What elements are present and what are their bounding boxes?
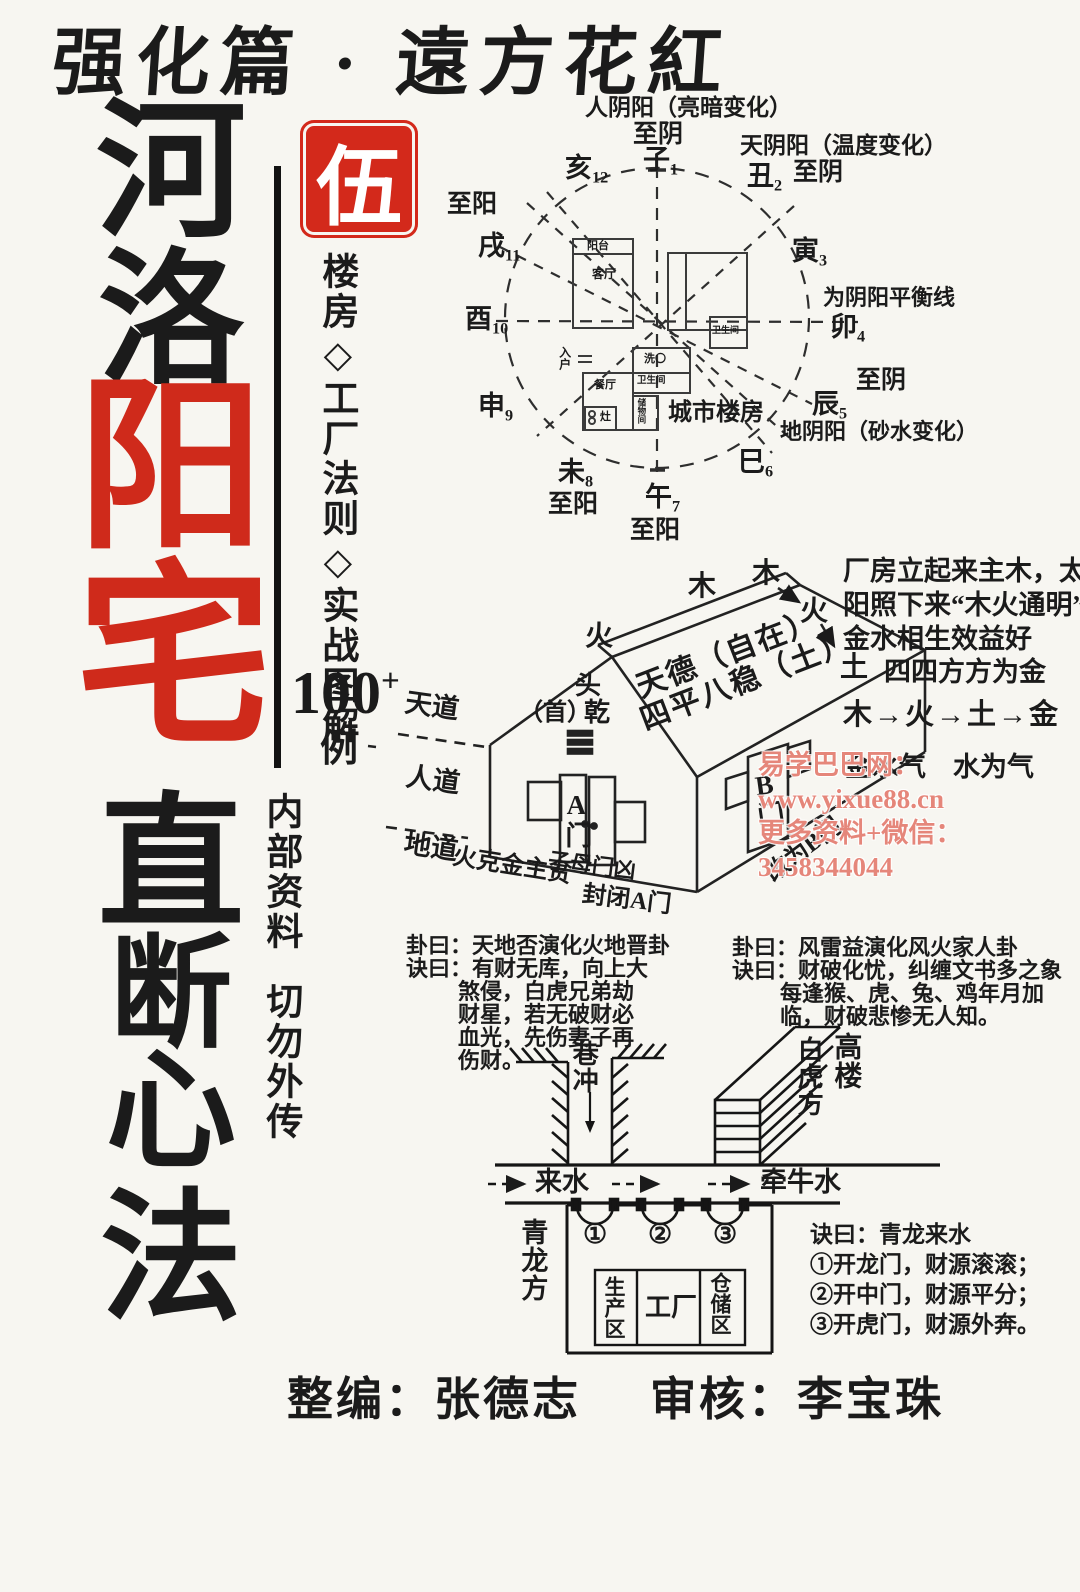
count-number: 100 (291, 660, 381, 726)
verse-line2: ②开中门，财源平分； (810, 1280, 1040, 1310)
branch-chen-num: 5 (839, 405, 847, 423)
branch-shen-num: 9 (505, 407, 513, 425)
branch-xu: 戌11 (478, 232, 520, 265)
element-wood-2: 木 (752, 559, 780, 588)
title-char-fa: 法 (76, 1188, 266, 1330)
label-door-a: A门 (562, 790, 590, 849)
branch-xu-num: 11 (505, 247, 520, 265)
branch-zi: 子1 (643, 146, 678, 179)
confidential-line1: 内部资料 (260, 792, 299, 952)
branch-yin-num: 3 (819, 252, 827, 270)
title-char-xin: 心 (76, 1048, 266, 1178)
element-fire-left: 火 (585, 622, 613, 651)
branch-shen: 申9 (478, 392, 513, 425)
label-incoming-water: 来水 (535, 1168, 589, 1196)
room-stove: 灶 (600, 412, 611, 424)
credit-editor: 整编：张德志 (287, 1374, 581, 1425)
room-bath1: 卫生间 (712, 326, 739, 335)
gua-block-left: 卦曰：天地否演化火地晋卦 诀曰：有财无库，向上大 煞侵，白虎兄弟劫 财星，若无破… (406, 934, 670, 1072)
zone-warehouse: 仓储区 (709, 1272, 731, 1335)
branch-zi-num: 1 (670, 161, 678, 179)
label-zhiyang-sw: 至阳 (548, 492, 598, 518)
label-green-dragon-side: 青龙方 (518, 1218, 546, 1302)
count-li-char: 例 (320, 730, 358, 770)
branch-shen-char: 申 (478, 391, 505, 421)
note-human-yinyang: 人阴阳（亮暗变化） (585, 96, 792, 120)
note-sky-yinyang: 天阴阳（温度变化） (740, 134, 947, 158)
seal-stamp-wu: 伍 (300, 120, 418, 238)
branch-zi-char: 子 (643, 145, 670, 175)
confidential-line2: 切勿外传 (260, 982, 299, 1142)
note-factory-elements: 厂房立起来主木，太 阳照下来“木火通明” 金水相生效益好 (843, 554, 1080, 656)
watermark-site: 易学巴巴网：www.yixue88.cn (758, 748, 1080, 816)
gua-left-line3: 煞侵，白虎兄弟劫 (458, 980, 670, 1003)
branch-wei: 未8 (558, 458, 593, 491)
label-entry: 入户 (558, 346, 571, 370)
gua-left-line1: 卦曰：天地否演化火地晋卦 (406, 934, 670, 957)
room-wash: 洗〇 (644, 354, 666, 366)
title-char-he: 河 (76, 98, 266, 248)
zone-production: 生产区 (603, 1276, 625, 1339)
branch-si-char: 巳 (738, 447, 765, 477)
note-factory-line1: 厂房立起来主木，太 (843, 554, 1080, 588)
label-zhiyin-ne: 至阴 (793, 160, 843, 186)
branch-chen: 辰5 (812, 390, 847, 423)
label-zhiyin-e: 至阴 (856, 368, 906, 394)
credit-reviewer: 审核：李宝珠 (650, 1374, 944, 1425)
room-balcony: 阳台 (587, 241, 609, 253)
element-earth: 土 (840, 653, 868, 682)
gua-right-line4: 临，财破悲惨无人知。 (780, 1005, 1062, 1028)
title-char-zhai: 宅 (76, 562, 266, 758)
note-factory-line2: 阳照下来“木火通明” (843, 588, 1080, 622)
branch-you: 酉10 (465, 305, 508, 338)
label-white-tiger-side: 白虎方 (795, 1036, 822, 1117)
gua-left-line6: 伤财。 (458, 1049, 670, 1072)
branch-si-num: 6 (765, 463, 773, 481)
gua-left-line5: 血光，先伤妻子再 (458, 1026, 670, 1049)
branch-si: 巳6 (738, 448, 773, 481)
branch-xu-char: 戌 (478, 231, 505, 261)
element-wood-1: 木 (688, 572, 716, 601)
branch-chen-char: 辰 (812, 389, 839, 419)
branch-you-num: 10 (492, 320, 508, 338)
label-zhiyang-w: 至阳 (447, 192, 497, 218)
title-char-yang: 阳 (76, 376, 266, 562)
gua-right-line3: 每逢猴、虎、兔、鸡年月加 (780, 982, 1062, 1005)
gua-block-right: 卦曰：风雷益演化风火家人卦 诀曰：财破化忧，纠缠文书多之象 每逢猴、虎、兔、鸡年… (732, 936, 1062, 1028)
gua-left-line2: 诀曰：有财无库，向上大 (406, 957, 670, 980)
branch-wu: 午7 (645, 483, 680, 516)
note-earth-yinyang: 地阴阳（砂水变化） (780, 420, 978, 443)
branch-wu-num: 7 (672, 498, 680, 516)
vertical-divider (274, 166, 281, 768)
verse-green-dragon: 诀曰：青龙来水 ①开龙门，财源滚滚； ②开中门，财源平分； ③开虎门，财源外奔。 (810, 1220, 1040, 1340)
branch-wu-char: 午 (645, 482, 672, 512)
watermark: 易学巴巴网：www.yixue88.cn 更多资料+微信：3458344044 (758, 748, 1080, 884)
room-bath2: 卫生间 (637, 377, 666, 387)
branch-yin-char: 寅 (792, 236, 819, 266)
count-100plus: 100+ (291, 662, 400, 725)
watermark-wechat: 更多资料+微信：3458344044 (758, 816, 1080, 884)
label-zhiyang-s: 至阳 (630, 518, 680, 544)
note-factory-line3: 金水相生效益好 (843, 622, 1080, 656)
branch-yin: 寅3 (792, 237, 827, 270)
label-leading-water: 牵牛水 (760, 1168, 841, 1196)
branch-chou: 丑2 (747, 162, 782, 195)
branch-chou-char: 丑 (747, 161, 774, 191)
gua-right-line2: 诀曰：财破化忧，纠缠文书多之象 (732, 959, 1062, 982)
label-head: 头 (575, 672, 601, 699)
label-tall-building: 高楼 (831, 1032, 860, 1090)
branch-chou-num: 2 (774, 177, 782, 195)
zone-factory: 工厂 (645, 1294, 697, 1321)
label-shou: （首） (519, 701, 591, 726)
branch-wei-char: 未 (558, 457, 585, 487)
door-number-1: ① (583, 1220, 607, 1248)
note-square-metal: 四四方方为金 (884, 658, 1046, 686)
branch-mao: 卯4 (830, 313, 865, 346)
door-number-2: ② (648, 1220, 672, 1248)
seal-char: 伍 (316, 117, 402, 242)
subtitle-vertical: 楼房◇工厂法则◇实战图解 (316, 252, 355, 682)
branch-wei-num: 8 (585, 473, 593, 491)
gua-left-line4: 财星，若无破财必 (458, 1003, 670, 1026)
door-number-3: ③ (713, 1220, 737, 1248)
branch-hai: 亥12 (565, 154, 608, 187)
branch-hai-num: 12 (592, 169, 608, 187)
note-balance-line: 为阴阳平衡线 (823, 286, 955, 309)
note-element-cycle: 木→火→土→金 (843, 700, 1060, 730)
title-char-zhi: 直 (76, 792, 266, 938)
credits-row: 整编：张德志 审核：李宝珠 (287, 1376, 944, 1424)
label-alley-rush: 巷冲 (570, 1040, 597, 1094)
verse-line3: ③开虎门，财源外奔。 (810, 1310, 1040, 1340)
branch-mao-num: 4 (857, 328, 865, 346)
element-fire-right: 火 (800, 597, 828, 626)
label-qian: 乾 (584, 699, 610, 726)
room-storage: 储物间 (637, 398, 646, 424)
floorplan-caption: 城市楼房 (668, 401, 764, 426)
branch-mao-char: 卯 (830, 312, 857, 342)
branch-hai-char: 亥 (565, 153, 592, 183)
gua-right-line1: 卦曰：风雷益演化风火家人卦 (732, 936, 1062, 959)
room-dining: 餐厅 (594, 380, 616, 392)
count-plus: + (381, 664, 400, 700)
room-living: 客厅 (592, 268, 616, 281)
title-char-duan: 断 (76, 935, 266, 1057)
verse-line1: ①开龙门，财源滚滚； (810, 1250, 1040, 1280)
document-page: 强化篇 · 遠方花紅 河 洛 阳 宅 直 断 心 法 伍 楼房◇工厂法则◇实战图… (0, 0, 1080, 1592)
branch-you-char: 酉 (465, 304, 492, 334)
verse-title: 诀曰：青龙来水 (810, 1220, 1040, 1250)
